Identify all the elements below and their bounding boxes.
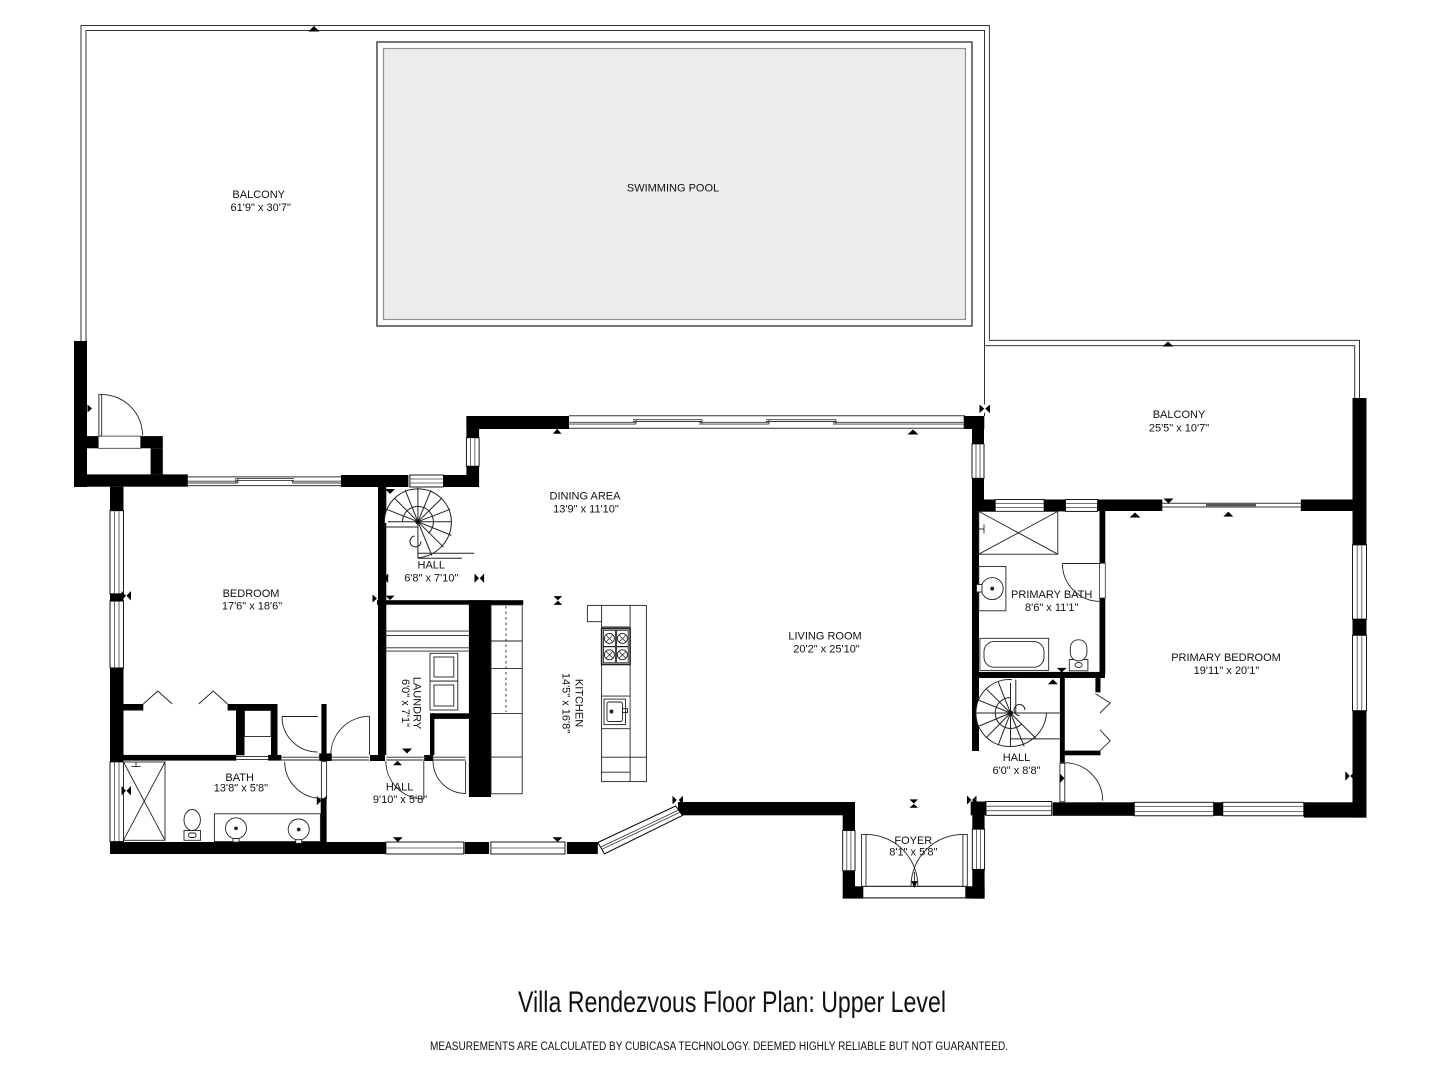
- svg-text:17'6" x 18'6": 17'6" x 18'6": [222, 601, 282, 613]
- svg-text:LIVING ROOM: LIVING ROOM: [788, 631, 861, 643]
- svg-text:19'11" x 20'1": 19'11" x 20'1": [1194, 665, 1260, 677]
- svg-text:DINING AREA: DINING AREA: [550, 491, 622, 503]
- svg-text:8'1" x 5'8": 8'1" x 5'8": [889, 847, 937, 859]
- svg-text:6'0" x 7'1": 6'0" x 7'1": [399, 679, 411, 727]
- svg-text:HALL: HALL: [418, 560, 446, 572]
- svg-text:BALCONY: BALCONY: [232, 189, 285, 201]
- svg-text:HALL: HALL: [386, 782, 414, 794]
- svg-text:13'9" x 11'10": 13'9" x 11'10": [553, 504, 619, 516]
- svg-text:MEASUREMENTS ARE CALCULATED BY: MEASUREMENTS ARE CALCULATED BY CUBICASA …: [430, 1041, 1008, 1053]
- svg-text:14'5" x 16'8": 14'5" x 16'8": [560, 673, 572, 733]
- svg-text:KITCHEN: KITCHEN: [573, 679, 585, 727]
- svg-text:9'10" x 5'8": 9'10" x 5'8": [373, 794, 427, 806]
- svg-text:BEDROOM: BEDROOM: [223, 588, 280, 600]
- svg-text:Villa Rendezvous Floor Plan: U: Villa Rendezvous Floor Plan: Upper Level: [518, 986, 946, 1019]
- svg-text:FOYER: FOYER: [894, 835, 932, 847]
- svg-text:8'6" x 11'1": 8'6" x 11'1": [1025, 602, 1078, 614]
- svg-text:13'8" x 5'8": 13'8" x 5'8": [214, 783, 268, 795]
- svg-text:25'5" x 10'7": 25'5" x 10'7": [1149, 422, 1209, 434]
- svg-text:20'2" x 25'10": 20'2" x 25'10": [793, 644, 860, 656]
- svg-text:PRIMARY BATH: PRIMARY BATH: [1011, 589, 1092, 601]
- svg-text:BALCONY: BALCONY: [1153, 409, 1206, 421]
- svg-text:PRIMARY BEDROOM: PRIMARY BEDROOM: [1171, 652, 1281, 664]
- svg-text:6'0" x 8'8": 6'0" x 8'8": [992, 765, 1040, 777]
- svg-text:SWIMMING POOL: SWIMMING POOL: [627, 183, 719, 195]
- svg-text:LAUNDRY: LAUNDRY: [411, 677, 423, 730]
- svg-text:HALL: HALL: [1003, 752, 1031, 764]
- svg-text:6'8" x 7'10": 6'8" x 7'10": [404, 573, 458, 585]
- svg-text:61'9" x 30'7": 61'9" x 30'7": [231, 202, 291, 214]
